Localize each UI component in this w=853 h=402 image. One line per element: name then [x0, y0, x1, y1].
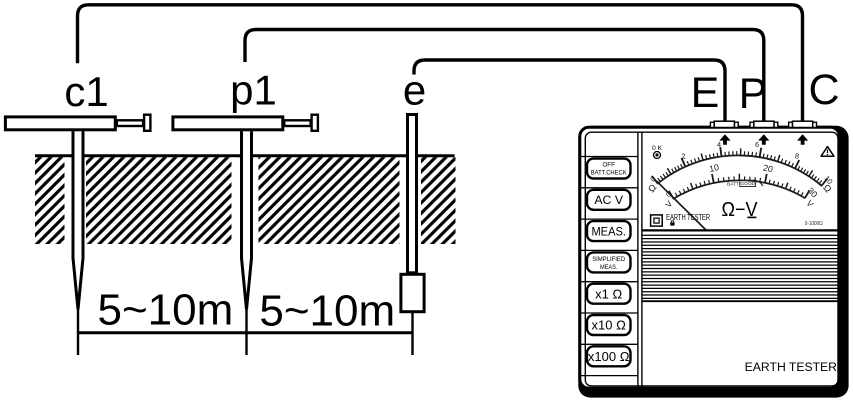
svg-text:e: e	[403, 67, 426, 114]
svg-text:5~10m: 5~10m	[259, 286, 395, 335]
svg-text:6: 6	[755, 140, 759, 149]
svg-text:OFF: OFF	[602, 161, 615, 168]
svg-text:5~10m: 5~10m	[98, 285, 234, 334]
svg-text:x10 Ω: x10 Ω	[592, 318, 627, 333]
svg-text:4: 4	[717, 140, 721, 149]
svg-text:E: E	[691, 69, 720, 117]
svg-text:BATT.: BATT.	[727, 181, 740, 187]
svg-text:MEAS.: MEAS.	[600, 264, 618, 271]
svg-text:GOOD: GOOD	[740, 181, 755, 187]
svg-text:BATT.CHECK: BATT.CHECK	[591, 170, 628, 177]
svg-text:EARTH TESTER: EARTH TESTER	[745, 360, 838, 374]
svg-text:p1: p1	[230, 67, 277, 114]
svg-text:MEAS.: MEAS.	[591, 224, 626, 238]
svg-text:C: C	[808, 66, 839, 114]
svg-text:P: P	[739, 70, 768, 118]
svg-text:x100 Ω: x100 Ω	[588, 349, 630, 364]
svg-text:0-1000Ω: 0-1000Ω	[805, 221, 823, 227]
svg-text:SIMPLIFIED: SIMPLIFIED	[592, 256, 625, 263]
svg-text:c1: c1	[64, 68, 108, 115]
svg-text:x1 Ω: x1 Ω	[595, 286, 622, 301]
svg-text:AC V: AC V	[594, 193, 623, 207]
